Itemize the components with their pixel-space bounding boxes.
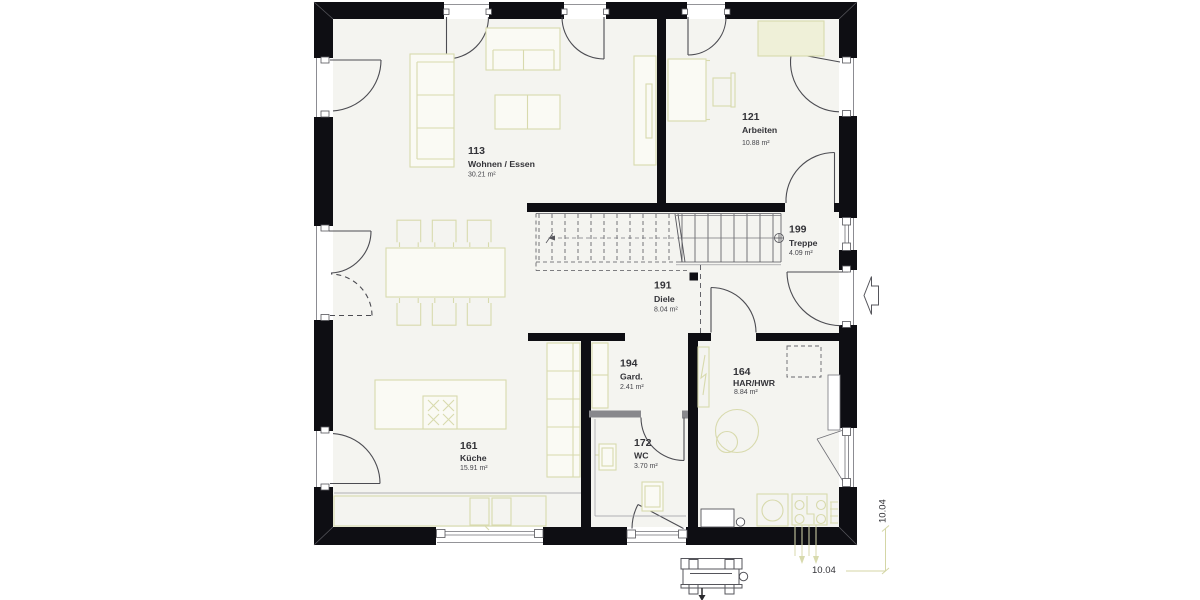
svg-text:172: 172 xyxy=(634,437,652,449)
svg-text:121: 121 xyxy=(742,111,760,123)
svg-text:HAR/HWR: HAR/HWR xyxy=(733,378,776,388)
svg-text:3.70 m²: 3.70 m² xyxy=(634,463,658,470)
svg-text:10.04: 10.04 xyxy=(878,499,889,523)
svg-text:199: 199 xyxy=(789,224,807,236)
svg-text:8.84 m²: 8.84 m² xyxy=(734,389,758,396)
svg-text:Küche: Küche xyxy=(460,453,487,463)
svg-text:8.04 m²: 8.04 m² xyxy=(654,307,678,314)
svg-text:Arbeiten: Arbeiten xyxy=(742,125,777,135)
svg-text:113: 113 xyxy=(468,145,485,157)
svg-text:30.21 m²: 30.21 m² xyxy=(468,172,496,179)
svg-text:2.41 m²: 2.41 m² xyxy=(620,384,644,391)
svg-text:194: 194 xyxy=(620,358,638,370)
svg-text:10.88 m²: 10.88 m² xyxy=(742,140,770,147)
svg-text:10.04: 10.04 xyxy=(812,565,836,576)
svg-text:Diele: Diele xyxy=(654,294,675,304)
svg-text:Treppe: Treppe xyxy=(789,238,818,248)
svg-text:15.91 m²: 15.91 m² xyxy=(460,465,488,472)
svg-text:WC: WC xyxy=(634,451,649,461)
svg-text:191: 191 xyxy=(654,280,672,292)
svg-text:Wohnen / Essen: Wohnen / Essen xyxy=(468,159,535,169)
svg-text:4.09 m²: 4.09 m² xyxy=(789,250,813,257)
svg-text:Gard.: Gard. xyxy=(620,372,643,382)
svg-text:164: 164 xyxy=(733,366,751,378)
svg-text:161: 161 xyxy=(460,440,478,452)
